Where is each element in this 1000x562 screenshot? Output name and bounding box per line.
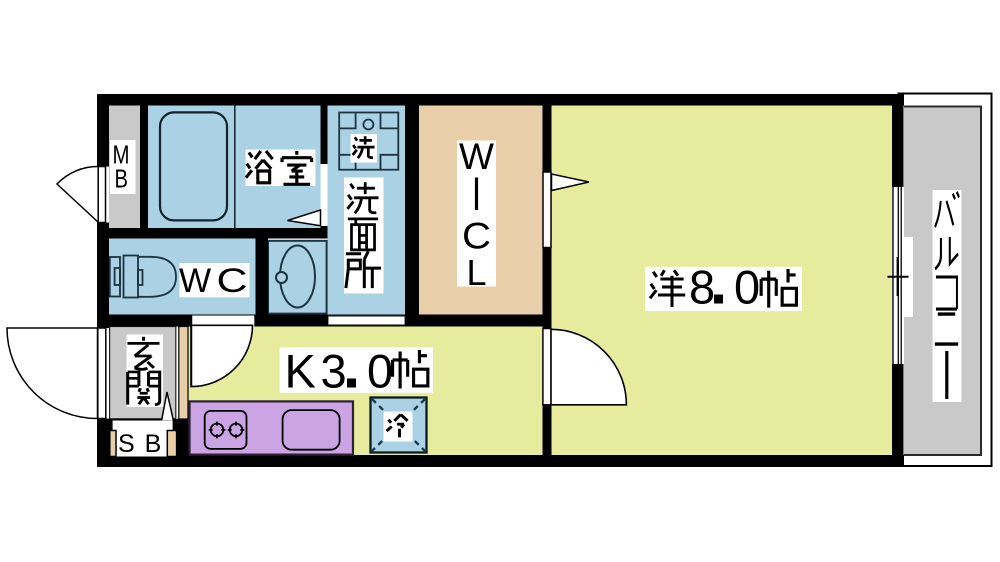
svg-text:C: C [462,215,491,256]
svg-text:K: K [285,345,316,398]
svg-text:SB: SB [118,430,171,458]
svg-text:W: W [459,136,494,177]
svg-text:L: L [466,252,486,293]
svg-text:3: 3 [321,345,347,398]
svg-text:B: B [115,164,129,194]
svg-text:0: 0 [367,345,393,398]
svg-text:8: 8 [689,261,715,314]
svg-text:0: 0 [734,261,760,314]
svg-text:W: W [179,262,211,300]
svg-text:C: C [217,262,248,300]
